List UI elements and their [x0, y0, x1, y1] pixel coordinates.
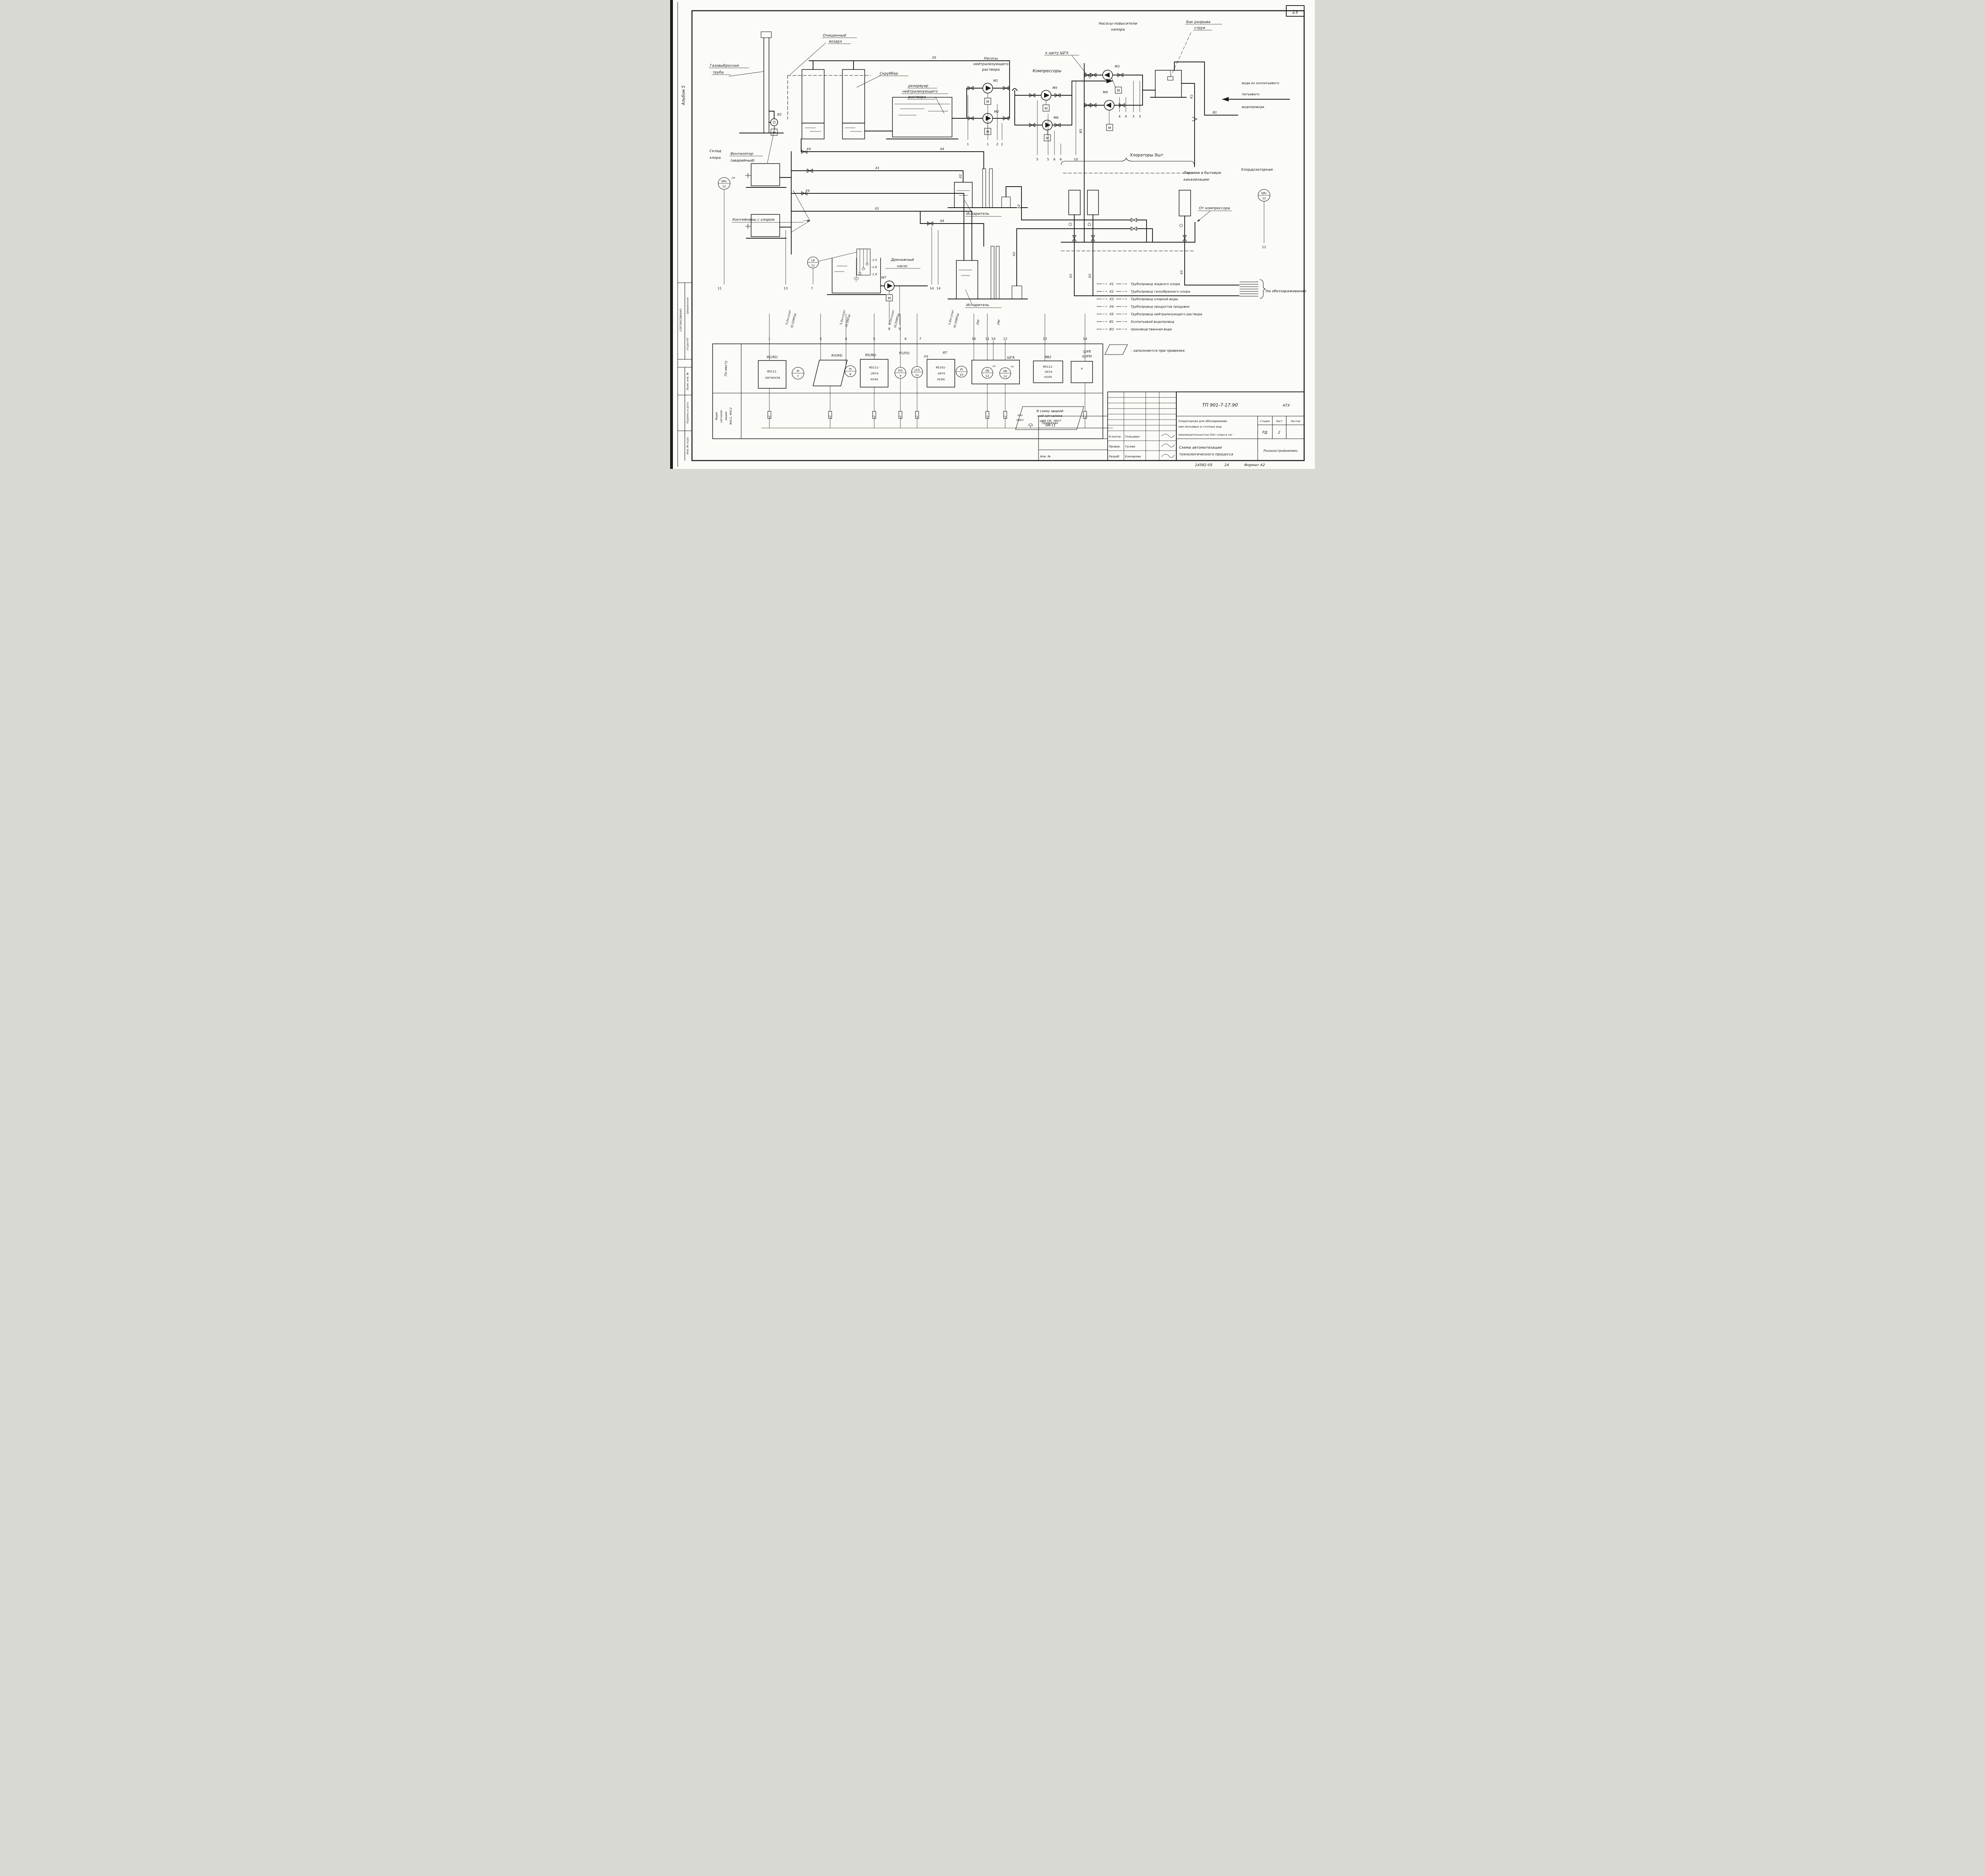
- sidebar-agreed: СОГЛАСОВАНО:: [679, 308, 682, 331]
- label-drain-pump-1: Дренажный: [890, 258, 914, 262]
- wire: 3: [819, 337, 821, 341]
- equipment-tags: М1 М2 М3 М4 М5 М6 М7 В2 М М М М М М М М: [773, 64, 1120, 300]
- tb-scheme-1: Схема автоматизации: [1179, 445, 1222, 450]
- level-3: -1,9: [871, 272, 877, 276]
- tag-fan: В2: [777, 112, 782, 116]
- bubble-num: 8: [850, 372, 852, 376]
- tb-main: ТП 901-7-17.90 АТХ Хлораторная для обезз…: [1176, 392, 1304, 461]
- pipe-x1: Х1: [875, 206, 879, 210]
- wire: 12: [1003, 337, 1007, 341]
- legend-name: Трубопровод жидкого хлора: [1131, 282, 1180, 286]
- note-line: ной сигнализа-: [1037, 414, 1064, 418]
- pipe-x3: Х3: [1088, 274, 1092, 279]
- label-drain-pump-2: насос: [897, 264, 908, 268]
- instrument-model: Я5111-: [1043, 365, 1053, 368]
- legend-name: Трубопровод нейтрализующего раствора: [1131, 312, 1202, 316]
- strip-bubble-pi8: PI 8: [845, 366, 856, 377]
- bubble-tag: LE: [811, 258, 815, 262]
- bubble-num: 9: [900, 374, 902, 378]
- tb-role-2: Провер.: [1109, 445, 1121, 448]
- pipe-x1: Х1: [875, 166, 880, 170]
- bubble-qrc-store: QRc 12 ce: [718, 176, 735, 189]
- tb-title-1: Хлораторная для обеззаражива-: [1178, 419, 1228, 423]
- tb-title-3: производительностью 50кг хлора в час: [1178, 433, 1233, 436]
- strip-bubble-pi7: PI 7: [792, 367, 804, 379]
- sidebar-album: Альбом 5: [681, 85, 686, 105]
- pipe-x2: Х2: [1012, 252, 1016, 257]
- bubble-tag: QRc: [1261, 191, 1267, 195]
- label-reservoir-1: резервуар: [908, 84, 928, 88]
- bubble-sup: ce: [992, 364, 996, 368]
- alarm-note: В схему аварий- ной сигнализа- ции см. л…: [1016, 407, 1084, 430]
- pipe-x3: Х3: [1179, 270, 1183, 275]
- strip-row2-label: зации: [724, 411, 728, 420]
- label-fan-2: (аварийный): [730, 158, 755, 163]
- instrument-tag: Я3(Я4): [831, 353, 842, 357]
- bubble-tag: PI: [797, 369, 799, 373]
- instrument-model: -3974УХЛ4: [764, 376, 781, 380]
- tag-motor: М: [1108, 126, 1111, 130]
- note-tag: НА1: [1018, 414, 1023, 417]
- pipe-x4: Х4: [940, 219, 944, 223]
- pipe-x3: Х3: [1069, 274, 1073, 279]
- label-clean-air-2: воздух: [829, 39, 842, 44]
- instrument-model: УХЛ4: [870, 378, 878, 381]
- bubble-tag: QE: [1003, 369, 1008, 373]
- tag-motor: М: [986, 100, 989, 104]
- tag-motor: М: [1046, 136, 1048, 140]
- level-2: -1,6: [871, 265, 877, 269]
- pressure-label: (0,05МПа): [893, 313, 900, 328]
- bubble-num: 10: [960, 373, 964, 376]
- tag-motor: М: [1117, 89, 1120, 93]
- label-overflow-2: канализацию: [1183, 177, 1209, 182]
- tb-sheet-value: 2: [1278, 430, 1280, 435]
- pipe-k1: К1: [1189, 94, 1193, 98]
- note-tag: (НА2): [1016, 418, 1024, 422]
- wire: 10: [972, 337, 976, 341]
- label-evaporator-lower: Испаритель: [966, 303, 989, 307]
- bubble-num: 11: [811, 264, 815, 267]
- label-fan-1: Вентилятор: [730, 152, 754, 156]
- pipe-x4: Х4: [940, 147, 944, 151]
- sidebar: Альбом 5 СОГЛАСОВАНО: Шишинская Отдел КГ…: [678, 85, 692, 461]
- instrument-model: -2874: [870, 372, 879, 375]
- pump-m1: [983, 83, 993, 93]
- bubble-sup: ce: [732, 176, 735, 179]
- sidebar-stamp-inv: Инв. № подл.: [686, 437, 689, 455]
- legend-name: Хозпитьевой водопровод: [1130, 320, 1174, 324]
- wire: 8: [888, 327, 890, 331]
- tag-m4: М4: [1103, 90, 1108, 94]
- tb-attach: Привязан: [1042, 421, 1058, 425]
- wire: 14: [930, 286, 934, 290]
- tag-motor: М: [1045, 106, 1047, 110]
- instrument-model: Я5141-: [936, 366, 946, 369]
- strip-bubble-lcs11: LCS 11 Р3: [912, 355, 928, 378]
- strip-row2-label: ЯАС1, ЯАС2: [729, 407, 732, 425]
- bubble-tag: LCS: [914, 368, 920, 372]
- legend-code: В3: [1110, 327, 1114, 331]
- wire: 7: [919, 337, 921, 341]
- fill-parallelogram: [1105, 345, 1127, 355]
- tag-m1: М1: [993, 79, 998, 83]
- pipe-x4: Х4: [806, 147, 811, 151]
- wire: 2: [1001, 142, 1003, 146]
- drain-sump: [819, 249, 885, 295]
- label-water-in-3: водопровода: [1242, 105, 1264, 109]
- strip-row2-label: Ящик: [715, 412, 718, 420]
- tb-sheets-label: Листов: [1290, 420, 1300, 423]
- label-storage-1: Склад: [709, 149, 721, 153]
- label-overflow-1: Перелив в бытовую: [1183, 171, 1221, 175]
- tag-motor: М: [986, 130, 989, 134]
- wire: 1: [967, 142, 969, 146]
- legend-fill-note: - заполняется при привязке.: [1131, 349, 1186, 353]
- tag-m6: М6: [1054, 116, 1058, 120]
- bubble-num: 12: [1262, 197, 1266, 200]
- panel-tag: ЩГА: [1007, 355, 1015, 359]
- label-booster-1: Насосы-повысители: [1099, 21, 1137, 26]
- instrument-tag: Я5(Я6): [865, 353, 876, 357]
- strip-instrument-shu: ШУ8 (ШУ9) *: [1071, 349, 1093, 383]
- scrubber: [802, 69, 865, 139]
- pump-m3: [1103, 70, 1113, 80]
- label-to-panel: к щиту ЩГА: [1045, 51, 1068, 55]
- instrument-tag: (ШУ9): [1082, 354, 1092, 358]
- instrument-tag: Р1(Р2): [899, 351, 910, 355]
- instrument-model: Я5111-: [869, 366, 879, 369]
- pressure-label: (0,5МПа): [844, 314, 851, 327]
- tb-stage-label: Стадия: [1260, 420, 1270, 423]
- tag-m3: М3: [1115, 64, 1120, 68]
- bubble-qrc-room: QRc 12: [1258, 189, 1270, 201]
- tag-m5: М5: [1052, 86, 1057, 90]
- compressor-m5: [1041, 91, 1051, 100]
- pipe-b1: В1: [1213, 110, 1217, 114]
- strip-instrument-yav2: ЯВ2 Я5111- -3574 УХЛ4: [1033, 355, 1063, 383]
- bubble-tag: PI: [960, 368, 963, 371]
- label-containers: Контейнеры с хлором: [732, 218, 775, 222]
- tb-role-1: Н.контр.: [1109, 435, 1122, 438]
- wire: 5: [873, 337, 875, 341]
- pressure-label: (0,16МПа): [952, 313, 960, 328]
- wire: 9: [898, 327, 900, 331]
- tb-scheme-2: технологического процесса: [1179, 452, 1233, 457]
- note-line: В схему аварий-: [1037, 409, 1064, 413]
- tb-sheet-label: Лист: [1276, 420, 1283, 423]
- tb-code-right: АТХ: [1282, 403, 1290, 408]
- pressure-label: 2МГ: [975, 318, 981, 326]
- bubble-num: 7: [797, 374, 799, 378]
- tb-org: Росиннстройнмпекс: [1264, 449, 1298, 453]
- pipe-x2: Х2: [1017, 204, 1021, 209]
- tb-doc: ТП 901-7-17.90: [1202, 402, 1238, 408]
- legend-code: Х3: [1109, 297, 1114, 301]
- label-to-disinfection: На обеззараживание: [1266, 289, 1307, 293]
- label-neutral-pumps-3: раствора: [982, 67, 1000, 72]
- legend-code: В1: [1110, 320, 1114, 324]
- legend-name: Трубопровод хлорной воды: [1131, 297, 1178, 301]
- label-water-in-1: вода из хозпитьевого: [1242, 81, 1279, 85]
- strip-instrument-ya1: Я1(Я2) Я5111- -3974УХЛ4: [758, 355, 786, 388]
- label-booster-2: напора: [1111, 27, 1125, 32]
- compressor-m6: [1043, 120, 1052, 130]
- label-reservoir-3: раствора: [908, 95, 926, 99]
- wire: 6: [1060, 157, 1062, 161]
- tb-stage-value: РД: [1262, 430, 1268, 435]
- wire: 6: [1053, 157, 1055, 161]
- star-mark: *: [1081, 368, 1083, 372]
- wire: 2: [996, 142, 998, 146]
- sidebar-stamp-sign-date: Подпись и дата: [686, 402, 689, 424]
- level-marks: -1,5 -1,6 -1,9: [871, 258, 877, 276]
- bubble-num: 12: [985, 374, 989, 378]
- tb-name-3: Елизарова: [1125, 455, 1141, 458]
- bubble-sup: ce: [1011, 365, 1014, 368]
- pressure-label: 2МГ: [996, 318, 1001, 326]
- strip-bubble-pi10: PI 10: [956, 366, 967, 377]
- tb-title-2: ния питьевых и сточных вод: [1178, 425, 1222, 428]
- wire: 5: [1036, 157, 1038, 161]
- tb-inv: Инв. №: [1040, 455, 1050, 458]
- bubble-num: 12: [722, 185, 726, 188]
- tb-grid: Н.контр. Гольцман Провер. Гусева Разраб.…: [1108, 392, 1176, 461]
- wire: 12: [1262, 245, 1266, 249]
- instrument-tag: ШУ8: [1083, 349, 1091, 353]
- break-tank: [1151, 70, 1186, 97]
- legend-name: Трубопровод газообразного хлора: [1131, 289, 1190, 293]
- tb-role-3: Разраб.: [1109, 455, 1120, 458]
- instrument-model: -3574: [1044, 370, 1052, 374]
- label-gas-stack-2: труба: [713, 70, 724, 75]
- wire: 3: [1132, 114, 1134, 118]
- pump-m7: [885, 281, 894, 291]
- label-reservoir-2: нейтрализующего: [902, 89, 938, 94]
- chlorinators: [1061, 158, 1194, 227]
- wire: 10: [1074, 157, 1078, 161]
- wire: 7: [811, 286, 813, 290]
- instrument-tag: Я7: [942, 351, 948, 355]
- wire: 14: [1083, 337, 1087, 341]
- tag-motor: М: [888, 296, 890, 300]
- pressure-labels: 3,2кгс/см² (0,32МПа) 5,0кгс/см² (0,5МПа)…: [784, 310, 1001, 328]
- strip-instrument-ya7: Я7 Я5141- -2674 УХЛ4: [927, 351, 955, 387]
- wire: 4: [1125, 114, 1127, 118]
- strip-instrument-ya3: Я3(Я4): [813, 353, 847, 386]
- wire: 11: [985, 337, 989, 341]
- instrument-tag: Я1(Я2): [766, 355, 778, 359]
- label-water-in-2: питьевого: [1242, 92, 1259, 96]
- page-number: 23: [1292, 9, 1298, 15]
- strip-row2-label: сигнали-: [719, 409, 723, 423]
- bubble-tag: PI: [849, 367, 852, 371]
- wire: 13: [784, 286, 788, 290]
- pressure-label: (0,32МПа): [790, 313, 797, 328]
- instrument-tag: ЯВ2: [1045, 355, 1052, 359]
- wire: 11: [718, 286, 722, 290]
- instrument-model: УХЛ4: [1044, 375, 1052, 379]
- legend: Х1 Трубопровод жидкого хлора Х2 Трубопро…: [1097, 282, 1202, 355]
- label-compressors: Компрессоры: [1033, 69, 1062, 73]
- instrument-model: УХЛ4: [937, 378, 945, 381]
- sidebar-dept: Отдел КГ: [686, 337, 689, 350]
- leaders: [709, 24, 1231, 308]
- wire: 14: [937, 286, 940, 290]
- wire: 4: [845, 337, 847, 341]
- level-1: -1,5: [871, 258, 877, 262]
- label-evaporator-upper: Испаритель: [966, 212, 989, 216]
- instrument-model: Я5111-: [767, 370, 777, 373]
- label-break-tank-1: Бак разрыва: [1186, 20, 1210, 24]
- strip-row1-label: По месту: [724, 361, 728, 376]
- label-storage-2: хлора: [709, 156, 721, 160]
- strip-panel-shga: ЩГА QE 12 ce QE 12 ce: [972, 355, 1019, 384]
- bubble-tag: PIS: [898, 369, 902, 372]
- sidebar-stamp-vzam: Взам. инв. №: [686, 372, 689, 390]
- legend-name: производственная вода: [1131, 327, 1172, 331]
- wire: 4: [1118, 114, 1120, 118]
- tag-motor: М: [773, 131, 775, 135]
- tb-name-1: Гольцман: [1125, 435, 1140, 438]
- title-block: Привязан Инв. № Н.контр. Гольцман Провер…: [1039, 392, 1304, 467]
- pipe-x5: Х5: [932, 56, 937, 60]
- instrument-model: -2674: [937, 372, 945, 375]
- label-neutral-pumps-1: Насосы: [984, 56, 998, 61]
- pump-m4: [1104, 100, 1114, 110]
- bubble-tag: QRc: [721, 179, 727, 183]
- label-chlor-room: Хлордозаторная: [1241, 168, 1273, 172]
- wire: 1: [768, 337, 770, 341]
- tag-m2: М2: [994, 110, 999, 114]
- bubble-num: 11: [915, 373, 919, 377]
- bubble-le: LE 11: [807, 257, 819, 268]
- sidebar-signature: Шишинская: [686, 297, 689, 314]
- pipe-x2: Х2: [958, 174, 962, 179]
- label-neutral-pumps-2: нейтрализующего: [973, 62, 1008, 66]
- label-chlorators: Хлораторы 9шт: [1129, 153, 1164, 158]
- label-from-compressor: От компрессора: [1199, 206, 1230, 210]
- pipe-x4: Х4: [805, 189, 810, 193]
- legend-code: Х1: [1109, 282, 1114, 286]
- tb-name-2: Гусева: [1125, 445, 1135, 448]
- wire: 13: [1043, 337, 1047, 341]
- instrument-tag: Р3: [924, 355, 928, 359]
- wire: 1: [987, 142, 989, 146]
- bubble-tag: QE: [985, 369, 990, 372]
- tb-footer-page: 24: [1224, 463, 1229, 467]
- strip-bubble-pis9: PIS 9 Р1(Р2): [895, 351, 910, 378]
- tag-m7: М7: [881, 276, 887, 280]
- legend-code: Х5: [1109, 312, 1114, 316]
- tb-footer-format: Формат А2: [1244, 463, 1265, 467]
- neutralizing-reservoir: [887, 97, 958, 139]
- diagram-labels: Газовыбросная труба Очищенный воздух Скр…: [709, 20, 1307, 307]
- schematic-svg: 23 Альбом 5 СОГЛАСОВАНО: Шишинская Отдел…: [670, 0, 1315, 469]
- gas-stack: [740, 32, 783, 133]
- label-break-tank-2: струи: [1194, 26, 1205, 30]
- disinfection-bundle: [1240, 280, 1266, 299]
- pipe-b3: В3: [1079, 129, 1083, 133]
- wire: 6: [904, 337, 906, 341]
- legend-name: Трубопровод продуктов продувки: [1131, 305, 1190, 308]
- wire: 5: [1047, 157, 1049, 161]
- label-gas-stack-1: Газовыбросная: [710, 64, 739, 68]
- equipment: [740, 32, 1266, 299]
- legend-code: Х4: [1109, 305, 1114, 308]
- tb-footer-code: 24582-05: [1195, 463, 1212, 467]
- wire: 3: [1139, 114, 1141, 118]
- legend-rows: Х1 Трубопровод жидкого хлора Х2 Трубопро…: [1097, 282, 1202, 331]
- wire: 10: [991, 337, 995, 341]
- bubble-num: 12: [1003, 374, 1007, 378]
- label-clean-air-1: Очищенный: [823, 33, 846, 38]
- chlorine-containers: [746, 164, 786, 238]
- legend-code: Х2: [1109, 289, 1114, 293]
- drawing-sheet: 23 Альбом 5 СОГЛАСОВАНО: Шишинская Отдел…: [670, 0, 1315, 469]
- label-scrubber: Скруббер: [880, 71, 898, 76]
